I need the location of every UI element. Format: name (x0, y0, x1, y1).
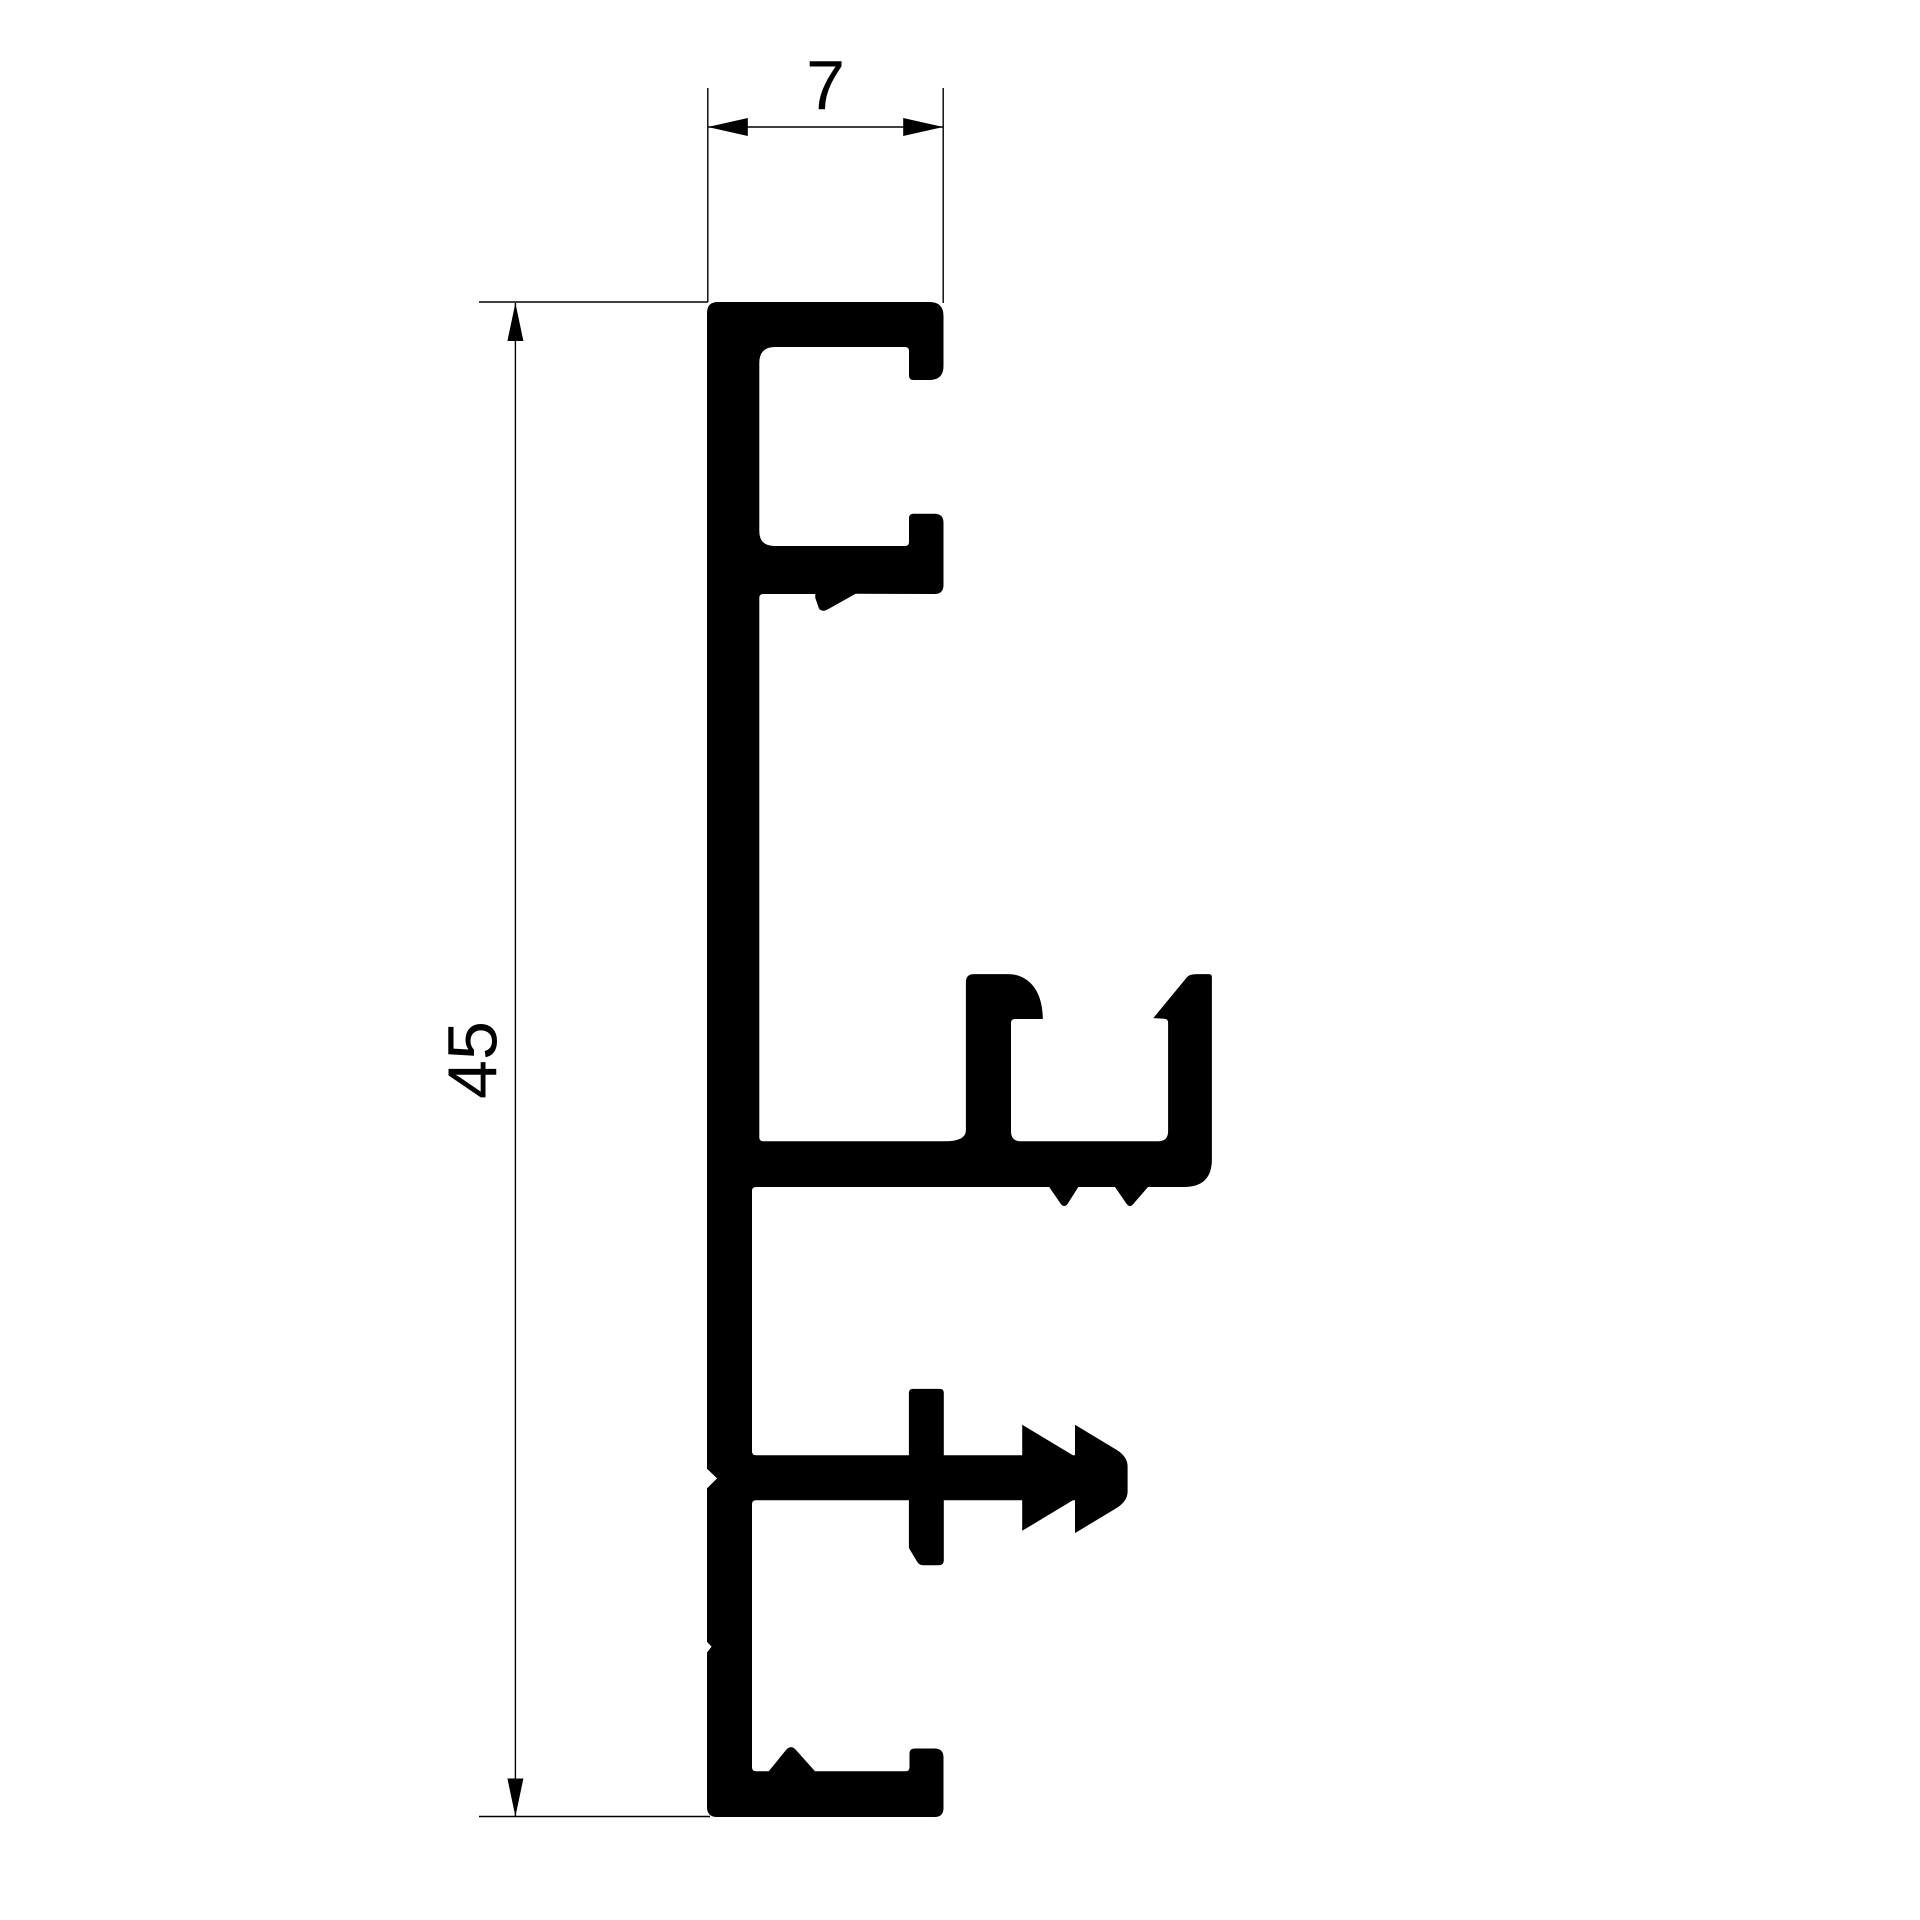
svg-text:7: 7 (806, 46, 845, 124)
svg-text:45: 45 (434, 1021, 512, 1099)
